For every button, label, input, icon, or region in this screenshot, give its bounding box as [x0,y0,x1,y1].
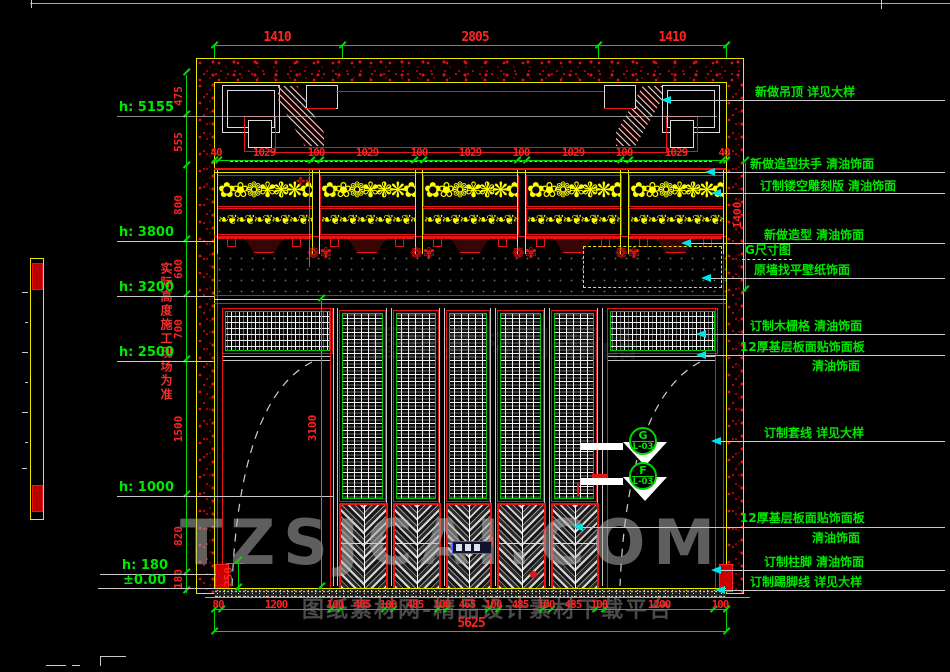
dim-line-right-upper [745,163,746,292]
callout-leader-bar [581,478,623,485]
dim-label-v: 800 [172,188,186,222]
dim-label: 485 [347,598,377,611]
anno-leader [714,172,945,173]
carved-panel: ✿❀❁✾❃❋✿❀❁✾❃❋✿❀❁✾ [320,175,416,207]
level-leader [117,241,215,242]
beam-line [214,295,726,296]
dim-label: 1410 [641,31,703,45]
dim-line-opening-height [321,301,322,589]
strip-tick [22,468,27,469]
ceiling-light-box-right [604,85,636,109]
wall-inner-top [214,82,726,83]
anno-leader [690,243,945,244]
dim-label-v: 1500 [172,410,186,448]
reference-strip-block [32,263,43,290]
anno-leader [724,590,945,591]
anno-leader [720,441,945,442]
dim-label: 485 [558,598,588,611]
annotation: 新做造型 清油饰面 [764,228,864,242]
dim-label-total: 5625 [440,617,502,631]
ceiling-light-red-left [306,108,336,109]
dim-label: 1200 [637,598,681,611]
dim-label-v: 3100 [306,411,320,445]
dim-line-top-row1 [214,45,726,46]
level-label: h: 5155 [112,101,174,115]
dim-label: 100 [707,598,733,611]
dim-line-plinth [238,563,239,591]
carved-panel: ✿❀❁✾❃❋✿❀❁✾❃❋✿❀❁✾ [629,175,724,207]
level-label: h: 1000 [112,481,174,495]
annotation: 订制套线 详见大样 [764,426,864,440]
page-edge-tick [881,0,882,9]
corner-artifact [72,665,80,666]
carved-scroll-panel: ❧❦❧❦❧❦❧❦❧❦❧❦❧❦❧❦❧❦ [423,208,519,235]
leader-arrow-icon [696,351,706,359]
post-line [415,170,416,254]
dim-label: 1029 [345,146,389,159]
leader-arrow-icon [711,566,721,574]
ceiling-capital-left-inner [248,120,272,148]
post-line [628,170,629,254]
dim-label-v: 250 [222,563,236,591]
dim-label: 1410 [246,31,308,45]
dim-label-v: 475 [172,79,186,113]
post-line [525,170,526,254]
dim-ext [214,45,215,58]
carved-vine-ornament: ✤✤✤✤ [296,177,310,233]
leader-arrow-icon [573,523,583,531]
dim-label: 100 [508,146,534,159]
post-line [723,170,724,254]
level-leader [117,496,333,497]
level-label: ±0.00 [110,574,166,588]
annotation: 订制柱脚 清油饰面 [764,555,864,569]
leader-arrow-icon [661,96,671,104]
anno-leader [720,570,945,571]
corner-artifact [100,656,101,666]
corner-artifact [46,665,66,666]
dim-label: 100 [533,598,559,611]
corner-artifact [100,656,126,657]
anno-leader [710,278,945,279]
dim-label: 100 [480,598,506,611]
strip-tick [22,292,28,293]
annotation: 新做造型扶手 清油饰面 [750,157,874,171]
handrail-line [214,168,726,170]
post-line [312,170,313,254]
leader-arrow-icon [715,586,725,594]
strip-tick [25,382,28,383]
anno-leader [582,527,945,528]
dim-ext [342,45,343,58]
leader-arrow-icon [711,189,721,197]
level-label: h: 180 [112,559,168,573]
dim-line-left-chain [186,75,187,593]
carved-panel: ✿❀❁✾❃❋✿❀❁✾❃❋✿❀❁✾ [526,175,622,207]
dim-label: 100 [375,598,401,611]
dim-label: 1200 [254,598,298,611]
dim-label: 465 [452,598,482,611]
dim-ext [726,45,727,58]
carved-scroll-panel: ❧❦❧❦❧❦❧❦❧❦❧❦❧❦❧❦❧❦ [526,208,622,235]
carved-scroll-panel: ❧❦❧❦❧❦❧❦❧❦❧❦❧❦❧❦❧❦ [320,208,416,235]
leader-arrow-icon [696,330,706,338]
annotation: G尺寸图 [745,243,791,257]
dim-label: 100 [303,146,329,159]
dim-label: 100 [322,598,348,611]
post-line [620,170,621,254]
dim-label: 485 [400,598,430,611]
handrail-yellow [214,172,726,173]
dim-label-v: 1400 [731,198,745,232]
watermark-logo-box [452,541,492,554]
annotation: 12厚基层板面贴饰面板 [740,511,865,525]
dim-label: 40 [714,146,734,159]
anno-leader [720,193,945,194]
level-leader [117,296,215,297]
anno-dashed-leader [742,259,792,260]
strip-tick [22,412,28,413]
dim-line-total [214,631,726,632]
annotation: 清油饰面 [812,359,860,373]
reference-strip [30,258,44,520]
wall-hatch-top [197,59,743,82]
watermark-faint: 图纸素材网-精品设计素材下载平台 [370,315,640,365]
dim-label: 485 [505,598,535,611]
cad-canvas: ✿❀❁✾❃❋✿❀❁✾❃❋✿❀❁✾ ✿❀❁✾❃❋✿❀❁✾❃❋✿❀❁✾ ✿❀❁✾❃❋… [0,0,950,672]
ceiling-dashed-line [230,161,712,162]
page-edge-tick [31,0,32,8]
anno-leader [705,355,945,356]
dim-ext [726,609,727,631]
dim-label: 100 [406,146,432,159]
reference-strip-block [32,485,43,512]
annotation: 订制踢脚线 详见大样 [750,575,862,589]
callout-leader-bar [581,443,623,450]
post-line [319,170,320,254]
red-mark [577,483,579,496]
level-label: h: 3200 [112,281,174,295]
dim-label: 2805 [444,31,506,45]
level-leader [117,116,717,117]
dim-label-v: 820 [172,519,186,553]
ceiling-light-red-right [604,108,634,109]
annotation: 订制镂空雕刻版 清油饰面 [760,179,896,193]
annotation: 清油饰面 [812,531,860,545]
dim-label-v: 180 [172,562,186,596]
dim-label: 100 [586,598,612,611]
leader-arrow-icon [681,239,691,247]
callout-f: F L-03 [629,462,657,490]
carved-panel: ✿❀❁✾❃❋✿❀❁✾❃❋✿❀❁✾ [423,175,519,207]
dim-label: 80 [207,598,229,611]
annotation: 订制木栅格 清油饰面 [750,319,862,333]
leader-arrow-icon [711,437,721,445]
anno-leader [670,100,945,101]
dim-label: 1029 [551,146,595,159]
level-leader [117,361,215,362]
strip-tick [22,352,28,353]
anno-leader [705,334,945,335]
carved-scroll-panel: ❧❦❧❦❧❦❧❦❧❦❧❦❧❦❧❦❧❦ [629,208,724,235]
callout-g: G L-03 [629,427,657,455]
strip-tick [25,442,28,443]
dim-label: 100 [611,146,637,159]
strip-tick [25,322,28,323]
post-line [422,170,423,254]
dim-label: 1029 [242,146,286,159]
dim-label: 1029 [654,146,698,159]
annotation: 新做吊顶 详见大样 [755,85,855,99]
page-edge-line [30,3,950,4]
dim-label-v: 555 [172,125,186,159]
annotation: 原墙找平壁纸饰面 [754,263,850,277]
dim-label: 1029 [448,146,492,159]
leader-arrow-icon [701,274,711,282]
dim-line-top-row2 [214,160,726,161]
dim-ext [598,45,599,58]
dim-label: 40 [206,146,226,159]
level-leader [98,588,218,589]
ceiling-capital-right-inner [670,120,694,148]
level-label: h: 3800 [112,226,174,240]
post-line [517,170,518,254]
annotation: 12厚基层板面贴饰面板 [740,340,865,354]
dim-ext [214,609,215,631]
level-label: h: 2500 [112,346,174,360]
ceiling-light-box-left [306,85,338,109]
leader-arrow-icon [705,168,715,176]
ceiling-red-line-upper [336,91,604,92]
post-line [217,170,218,254]
